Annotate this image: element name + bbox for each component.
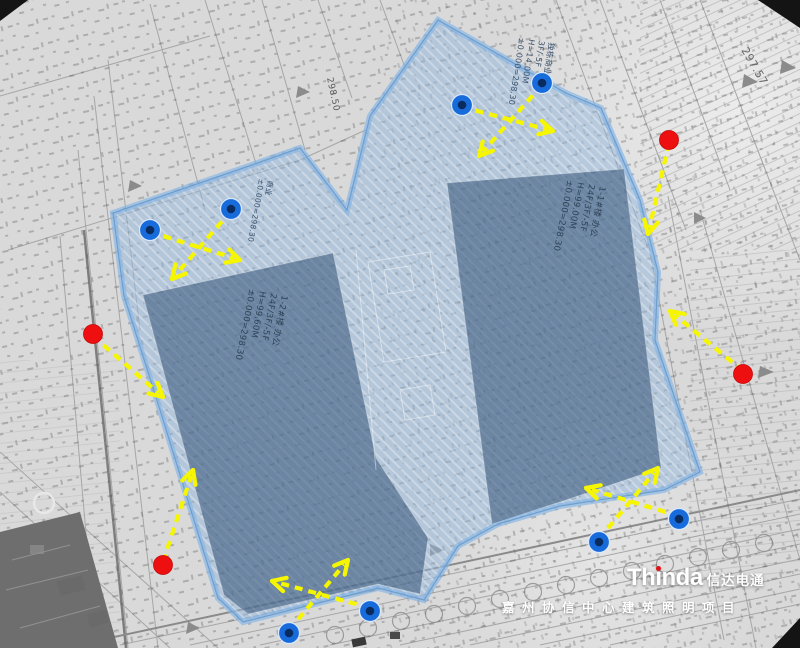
- blue-marker: [221, 199, 242, 220]
- red-marker: [84, 325, 103, 344]
- red-marker: [734, 365, 753, 384]
- site-plan-canvas: 298.50297.57 1-1#楼 办公24F/3F/-5FH=99.00M±…: [0, 0, 800, 648]
- brand-text-post: nda: [662, 564, 703, 591]
- base-map: 298.50297.57 1-1#楼 办公24F/3F/-5FH=99.00M±…: [0, 0, 800, 648]
- red-marker: [660, 131, 679, 150]
- red-marker: [154, 556, 173, 575]
- blue-marker: [532, 73, 553, 94]
- blue-marker: [669, 509, 690, 530]
- blue-marker: [360, 601, 381, 622]
- brand-i-letter: i: [655, 564, 661, 591]
- blue-marker: [279, 623, 300, 644]
- project-title: 嘉州协信中心建筑照明项目: [502, 597, 742, 616]
- blue-marker: [140, 220, 161, 241]
- brand-text-pre: Th: [627, 564, 655, 591]
- brand-cjk: 信达电通: [707, 569, 765, 589]
- brand-wordmark: Thinda: [627, 564, 703, 592]
- blue-marker: [589, 532, 610, 553]
- blue-marker: [452, 95, 473, 116]
- brand-logo: Thinda 信达电通: [627, 564, 765, 592]
